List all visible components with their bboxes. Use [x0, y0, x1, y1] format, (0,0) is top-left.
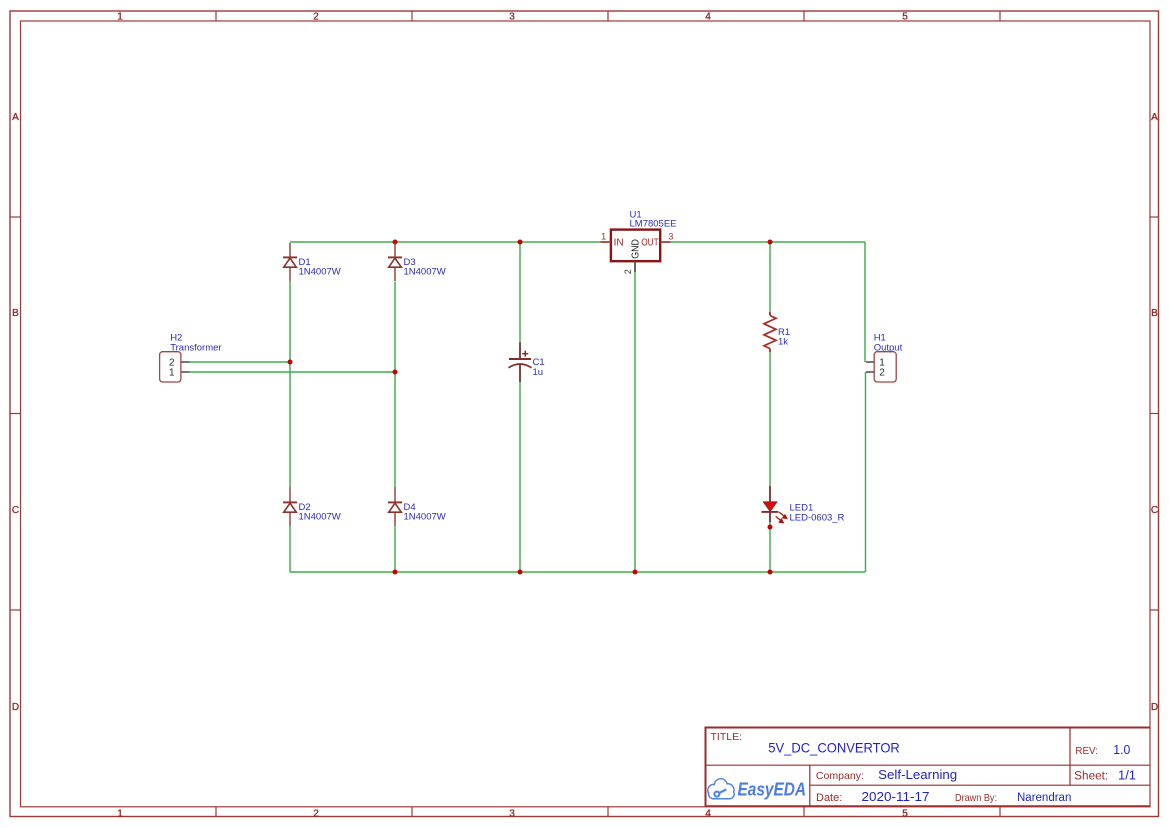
svg-text:2: 2 [313, 808, 319, 819]
svg-text:1N4007W: 1N4007W [404, 511, 446, 522]
svg-text:C: C [1151, 505, 1158, 516]
svg-text:REV:: REV: [1075, 745, 1098, 757]
svg-text:1: 1 [601, 232, 606, 242]
svg-text:B: B [1151, 308, 1158, 319]
svg-text:D: D [1151, 702, 1158, 713]
svg-text:A: A [1151, 112, 1158, 123]
svg-text:Sheet:: Sheet: [1074, 770, 1108, 782]
svg-text:2: 2 [623, 269, 633, 274]
svg-text:1: 1 [169, 368, 175, 379]
svg-text:TITLE:: TITLE: [711, 731, 743, 743]
svg-text:1k: 1k [778, 337, 788, 348]
svg-text:Date:: Date: [816, 792, 842, 804]
svg-text:1N4007W: 1N4007W [404, 266, 446, 277]
svg-text:Narendran: Narendran [1017, 792, 1071, 804]
svg-text:1/1: 1/1 [1118, 767, 1136, 782]
svg-text:C: C [12, 505, 19, 516]
svg-text:2020-11-17: 2020-11-17 [862, 789, 930, 804]
svg-text:1.0: 1.0 [1113, 742, 1130, 757]
svg-text:5: 5 [902, 808, 908, 819]
svg-text:2: 2 [313, 12, 319, 23]
svg-text:2: 2 [879, 368, 885, 379]
svg-text:1: 1 [117, 808, 123, 819]
svg-text:EasyEDA: EasyEDA [738, 780, 807, 800]
svg-text:B: B [12, 308, 19, 319]
svg-text:A: A [12, 112, 19, 123]
svg-text:1N4007W: 1N4007W [299, 511, 341, 522]
svg-text:1u: 1u [533, 367, 544, 378]
svg-text:3: 3 [509, 12, 515, 23]
svg-text:1N4007W: 1N4007W [299, 266, 341, 277]
svg-text:D: D [12, 702, 19, 713]
svg-text:1: 1 [117, 12, 123, 23]
svg-text:Self-Learning: Self-Learning [878, 767, 957, 782]
svg-text:Output: Output [874, 342, 903, 353]
svg-text:3: 3 [668, 232, 673, 242]
svg-text:Company:: Company: [816, 770, 864, 782]
svg-text:5V_DC_CONVERTOR: 5V_DC_CONVERTOR [768, 740, 900, 756]
svg-text:4: 4 [705, 808, 711, 819]
svg-text:5: 5 [902, 12, 908, 23]
svg-text:OUT: OUT [641, 237, 659, 248]
svg-text:4: 4 [705, 12, 711, 23]
svg-text:LED-0603_R: LED-0603_R [790, 513, 845, 524]
svg-text:Transformer: Transformer [170, 342, 221, 353]
svg-text:GND: GND [629, 239, 641, 259]
svg-text:Drawn By:: Drawn By: [955, 792, 997, 804]
svg-text:IN: IN [614, 237, 624, 248]
svg-text:3: 3 [509, 808, 515, 819]
svg-text:LM7805EE: LM7805EE [630, 219, 677, 230]
